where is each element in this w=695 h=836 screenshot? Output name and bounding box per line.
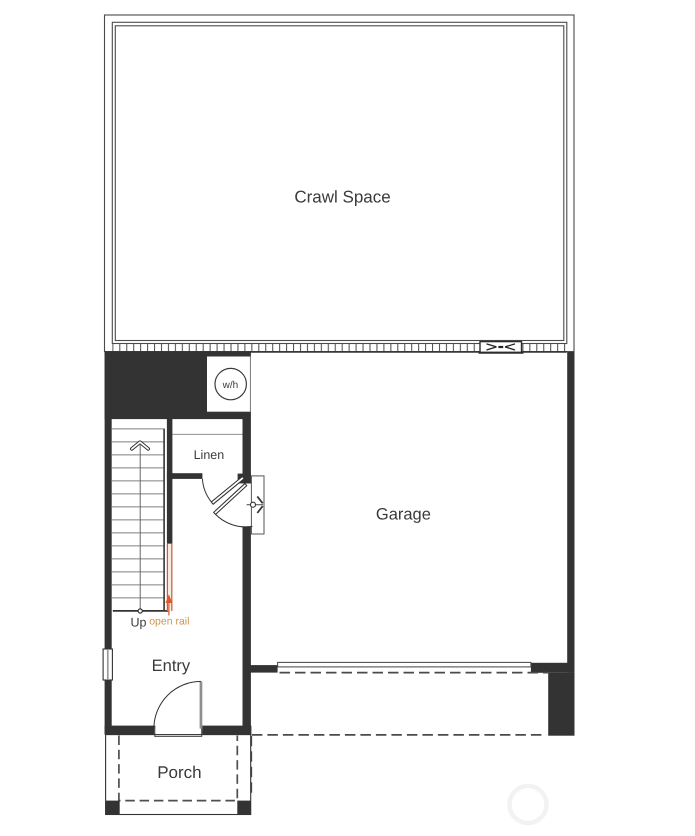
svg-text:Entry: Entry — [152, 657, 191, 675]
svg-text:Porch: Porch — [157, 763, 201, 782]
svg-text:Crawl Space: Crawl Space — [294, 188, 390, 207]
svg-text:Garage: Garage — [376, 506, 431, 524]
svg-text:Linen: Linen — [194, 448, 225, 462]
svg-text:w/h: w/h — [222, 380, 239, 391]
svg-text:open rail: open rail — [149, 615, 189, 627]
svg-text:Up: Up — [131, 616, 147, 630]
